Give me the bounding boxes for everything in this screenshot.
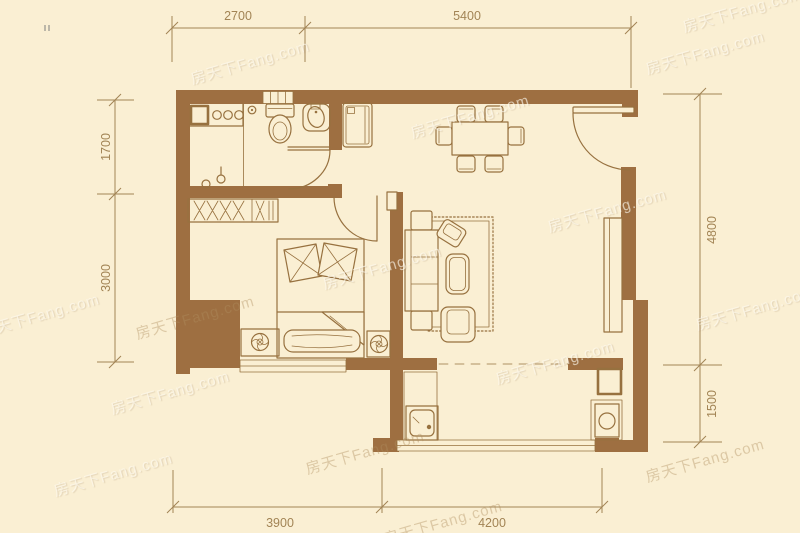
dim-bottom-1: 3900 <box>266 516 294 530</box>
nightstand-left <box>241 329 279 356</box>
wall-bedroom-living <box>390 192 403 440</box>
foot-quilt <box>284 330 360 352</box>
tv-cabinet <box>604 218 622 332</box>
washing-machine <box>343 103 372 147</box>
dim-top-1: 2700 <box>224 9 252 23</box>
wall-lowerkitchen-left <box>346 358 437 370</box>
wall-right-lower <box>633 300 648 452</box>
side-table-top <box>411 211 432 230</box>
bedroom-door <box>334 192 397 241</box>
lower-kitchen <box>404 369 622 440</box>
kitchen-burners <box>213 111 244 120</box>
window-bedroom <box>240 360 346 372</box>
wardrobe <box>188 199 278 222</box>
floor-drain-icon <box>248 106 256 114</box>
wall-bath-divider <box>329 104 342 150</box>
dim-right-2: 1500 <box>705 390 719 418</box>
window-balcony <box>397 440 595 451</box>
toilet <box>266 104 294 143</box>
nightstand-right <box>367 331 390 357</box>
side-table-bottom <box>411 311 432 330</box>
coffee-table <box>446 254 469 294</box>
kitchen-sink-lower <box>406 406 438 440</box>
wall-post-left <box>373 438 399 452</box>
wall-column <box>176 300 240 368</box>
floorplan-drawing: 2700 5400 1700 3000 4800 1500 3900 4200 <box>0 0 800 533</box>
appliance-box <box>598 369 621 394</box>
bed <box>277 239 364 358</box>
dining-set <box>436 106 524 172</box>
kitchen-sink <box>191 106 208 124</box>
wall-top <box>176 90 638 104</box>
sofa <box>405 230 438 311</box>
wall-right-upper <box>621 167 636 300</box>
bathroom <box>248 104 330 143</box>
dim-right-1: 4800 <box>705 216 719 244</box>
wall-stub <box>328 184 342 198</box>
living-room <box>405 211 622 342</box>
wall-corner-fill <box>617 440 635 452</box>
bathroom-door <box>288 147 330 189</box>
floorplan-canvas: 2700 5400 1700 3000 4800 1500 3900 4200 … <box>0 0 800 533</box>
corner-artifact-mark <box>44 25 50 31</box>
dim-top-2: 5400 <box>453 9 481 23</box>
dining-table <box>452 122 508 155</box>
accent-chair <box>436 218 468 248</box>
dim-bottom-2: 4200 <box>478 516 506 530</box>
washer-lower <box>591 400 622 440</box>
washbasin <box>303 104 330 131</box>
kitchen <box>190 104 244 188</box>
window-bathroom <box>263 92 293 104</box>
dim-left-1: 1700 <box>99 133 113 161</box>
kitchen-floor-drains <box>202 167 225 188</box>
wall-bath-bottom <box>190 186 342 198</box>
dim-left-2: 3000 <box>99 264 113 292</box>
armchair <box>441 307 475 342</box>
